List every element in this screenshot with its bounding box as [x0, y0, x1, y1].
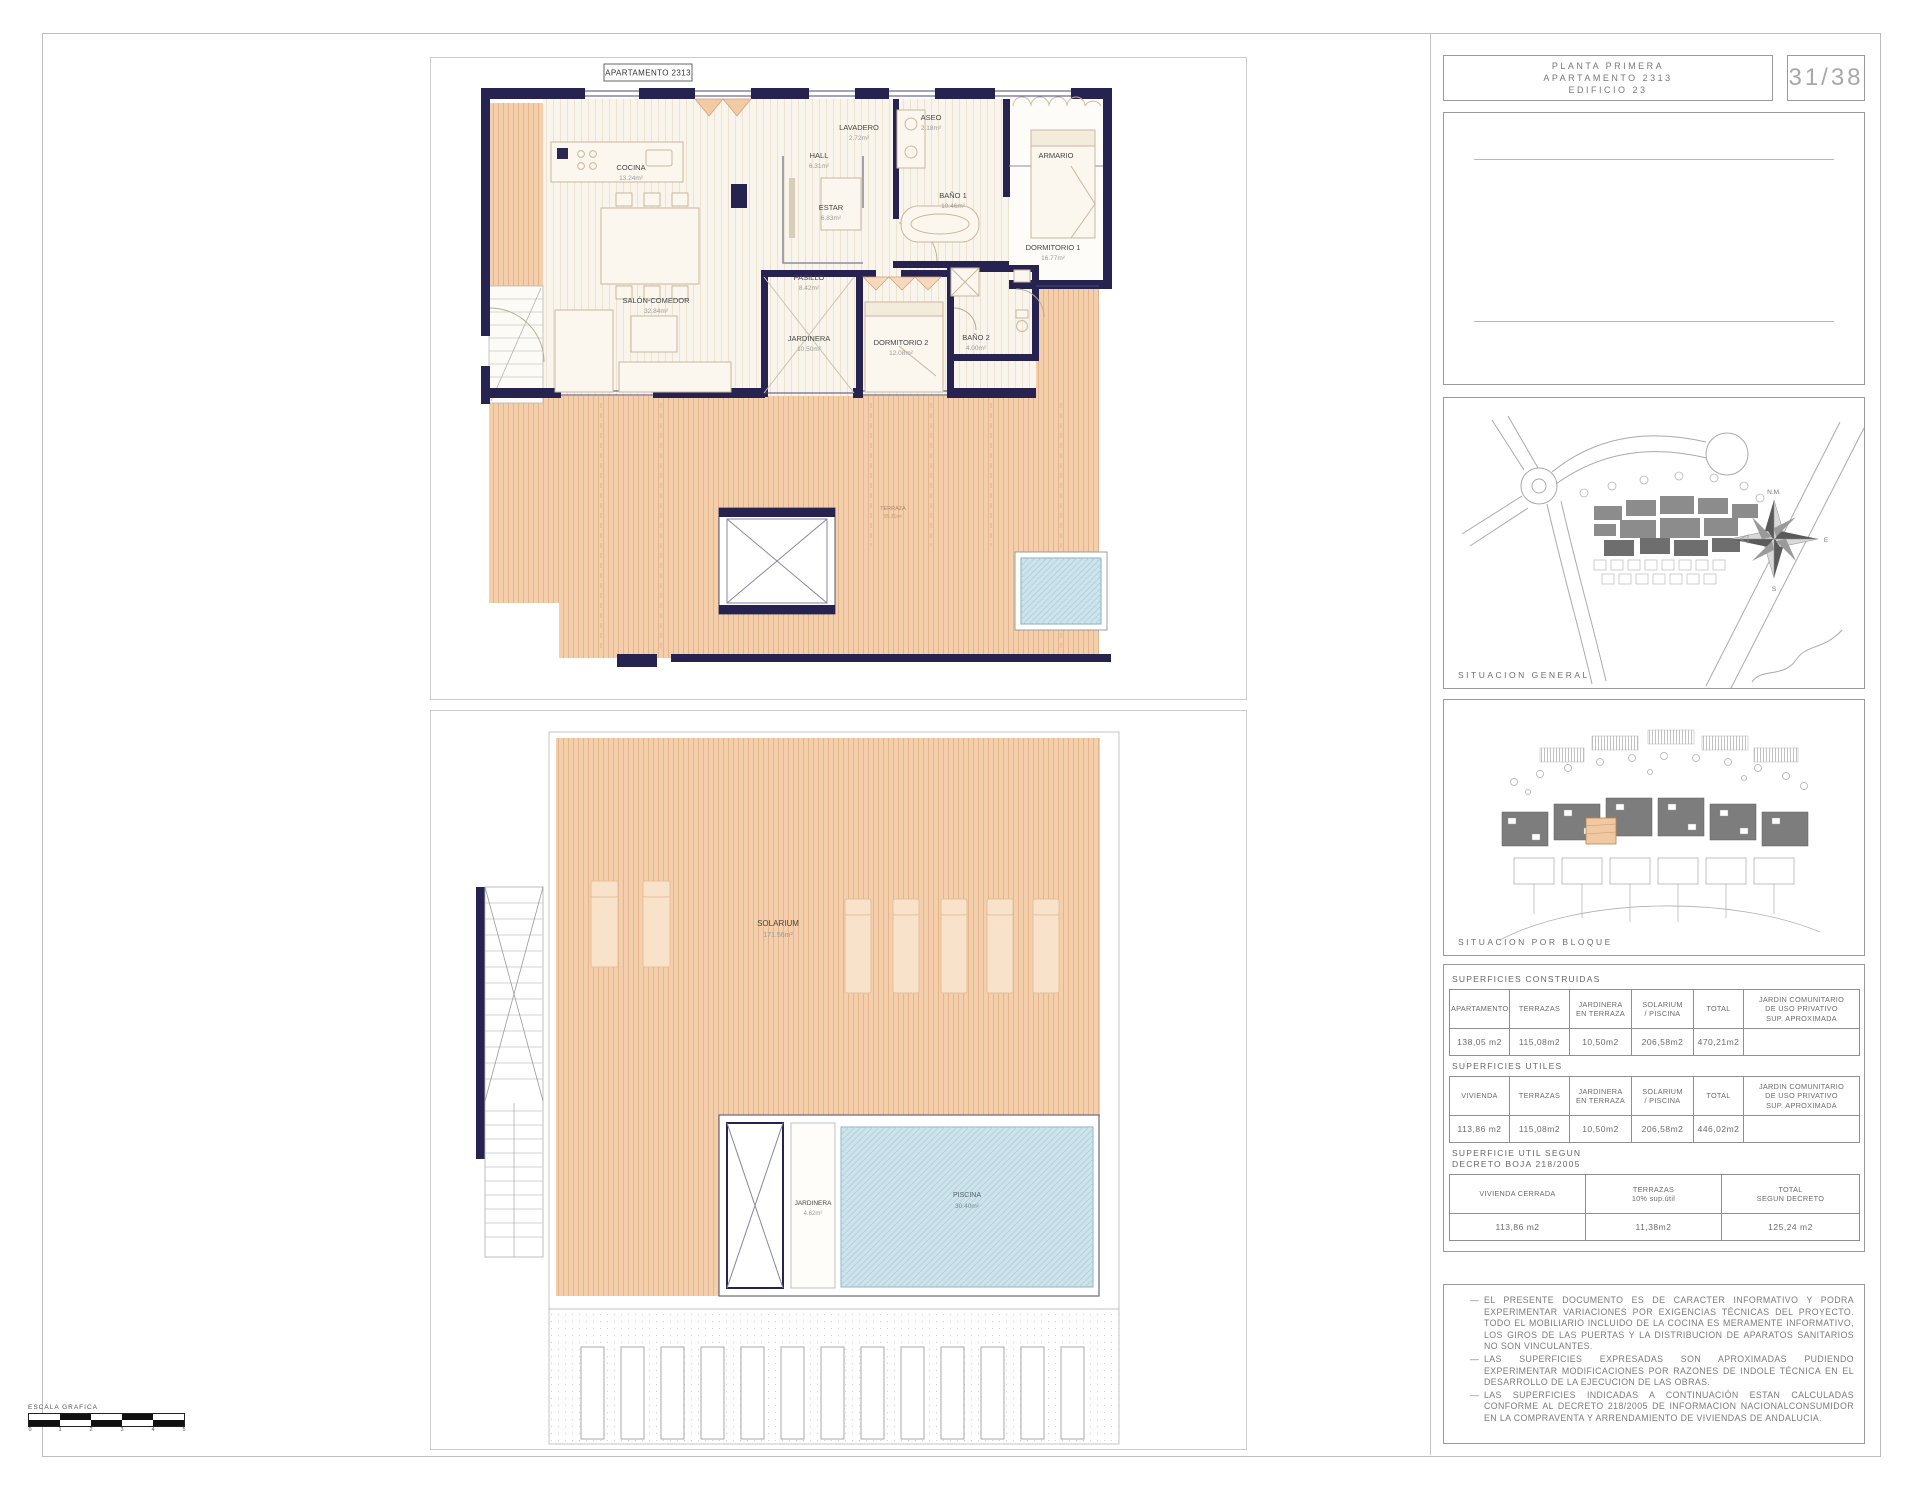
situation-bloque-caption: SITUACION POR BLOQUE: [1458, 937, 1613, 947]
scale-tick: 4: [151, 1427, 154, 1433]
note-item: — LAS SUPERFICIES EXPRESADAS SON APROXIM…: [1470, 1354, 1854, 1389]
cell-value: 206,58m2: [1632, 1029, 1694, 1056]
col-header: JARDIN COMUNITARIO DE USO PRIVATIVO SUP.…: [1744, 1077, 1860, 1116]
col-header: APARTAMENTO: [1450, 990, 1510, 1029]
graphic-scale: ESCALA GRAFICA 0 1 2 3 4 5: [28, 1404, 198, 1435]
scale-tick: 1: [58, 1427, 61, 1433]
sheet-number-box: 31/38: [1787, 55, 1865, 101]
cell-value: 206,58m2: [1632, 1116, 1694, 1143]
signature-box: [1443, 112, 1865, 385]
signature-line: [1474, 321, 1834, 322]
title-line-3: EDIFICIO 23: [1444, 84, 1772, 96]
col-header: TERRAZAS: [1510, 1077, 1570, 1116]
col-header: VIVIENDA CERRADA: [1450, 1175, 1586, 1214]
signature-line: [1474, 159, 1834, 160]
cell-value: 125,24 m2: [1722, 1214, 1860, 1241]
cell-value: 115,08m2: [1510, 1116, 1570, 1143]
cell-value: 11,38m2: [1586, 1214, 1722, 1241]
room-label: ARMARIO: [1038, 151, 1073, 160]
room-area: 2.72m²: [849, 135, 870, 142]
room-area: 16.77m²: [1041, 255, 1066, 262]
table-caption-decreto: SUPERFICIE UTIL SEGUN DECRETO BOJA 218/2…: [1452, 1148, 1856, 1170]
column-divider: [1430, 33, 1431, 1455]
title-line-2: APARTAMENTO 2313: [1444, 72, 1772, 84]
room-area: 6.83m²: [821, 215, 842, 222]
apartment-floor-plan: APARTAMENTO 2313 COCINA 13.24m² HALL 6.3…: [431, 58, 1246, 699]
col-header: TOTAL SEGUN DECRETO: [1722, 1175, 1860, 1214]
room-area: 12.08m²: [889, 350, 914, 357]
room-label: SOLARIUM: [757, 919, 799, 928]
room-label: LAVADERO: [839, 123, 879, 132]
apartment-plan-panel: APARTAMENTO 2313 COCINA 13.24m² HALL 6.3…: [430, 57, 1247, 700]
cell-value: [1744, 1116, 1860, 1143]
table-utiles: VIVIENDA TERRAZAS JARDINERA EN TERRAZA S…: [1449, 1076, 1860, 1143]
cell-value: 113,86 m2: [1450, 1214, 1586, 1241]
cell-value: [1744, 1029, 1860, 1056]
scale-label: ESCALA GRAFICA: [28, 1404, 198, 1411]
hatch-strips: [1540, 730, 1798, 762]
solarium-floor-plan: SOLARIUM 171.56m² JARDINERA 4.62m² PISCI…: [431, 711, 1246, 1449]
room-label: HALL: [810, 151, 829, 160]
room-area: 6.31m²: [809, 163, 830, 170]
building-cluster: [1580, 472, 1764, 584]
room-label: BAÑO 2: [962, 333, 990, 342]
scale-tick: 0: [28, 1427, 31, 1433]
cell-value: 446,02m2: [1694, 1116, 1744, 1143]
cell-value: 115,08m2: [1510, 1029, 1570, 1056]
col-header: SOLARIUM / PISCINA: [1632, 1077, 1694, 1116]
room-area: 10.50m²: [797, 346, 822, 353]
note-text: LAS SUPERFICIES EXPRESADAS SON APROXIMAD…: [1484, 1354, 1854, 1389]
table-decreto: VIVIENDA CERRADA TERRAZAS 10% sup.útil T…: [1449, 1174, 1860, 1241]
pool-row: [719, 1115, 1099, 1296]
col-header: TOTAL: [1694, 990, 1744, 1029]
room-area: 10.46m²: [941, 203, 966, 210]
situation-general-caption: SITUACION GENERAL: [1458, 670, 1590, 680]
room-area: 4.00m²: [966, 345, 987, 352]
drawing-sheet: APARTAMENTO 2313 COCINA 13.24m² HALL 6.3…: [0, 0, 1920, 1491]
compass-east-label: E: [1824, 537, 1829, 544]
title-line-1: PLANTA PRIMERA: [1444, 60, 1772, 72]
room-label: ASEO: [921, 113, 942, 122]
col-header: TOTAL: [1694, 1077, 1744, 1116]
col-header: JARDINERA EN TERRAZA: [1570, 990, 1632, 1029]
sheet-number: 31/38: [1788, 64, 1863, 92]
situation-bloque-map: [1444, 700, 1864, 957]
note-item: — LAS SUPERFICIES INDICADAS A CONTINUACI…: [1470, 1390, 1854, 1425]
room-label: ESTAR: [819, 203, 844, 212]
col-header: JARDIN COMUNITARIO DE USO PRIVATIVO SUP.…: [1744, 990, 1860, 1029]
legal-notes: — EL PRESENTE DOCUMENTO ES DE CARACTER I…: [1443, 1284, 1865, 1444]
plan-tag-label: APARTAMENTO 2313: [605, 69, 691, 78]
stairs: [476, 887, 543, 1257]
scale-tick: 5: [182, 1427, 185, 1433]
table-construidas: APARTAMENTO TERRAZAS JARDINERA EN TERRAZ…: [1449, 989, 1860, 1056]
room-area: 4.62m²: [804, 1211, 823, 1217]
room-area: 30.40m²: [955, 1203, 980, 1210]
stairs: [489, 286, 543, 403]
room-label: COCINA: [616, 163, 645, 172]
cell-value: 470,21m2: [1694, 1029, 1744, 1056]
highlighted-unit: [1586, 818, 1616, 844]
scale-tick: 2: [89, 1427, 92, 1433]
note-bullet: —: [1470, 1390, 1484, 1425]
situation-general-map: N.M. E S: [1444, 398, 1864, 688]
plan-tag: APARTAMENTO 2313: [604, 64, 692, 81]
room-label: PISCINA: [953, 1192, 981, 1199]
col-header: JARDINERA EN TERRAZA: [1570, 1077, 1632, 1116]
table-caption-utiles: SUPERFICIES UTILES: [1452, 1061, 1856, 1072]
room-label: DORMITORIO 1: [1026, 243, 1081, 252]
scale-bar: [28, 1413, 185, 1427]
terrace-pool: [1015, 552, 1107, 630]
cell-value: 10,50m2: [1570, 1116, 1632, 1143]
room-label: JARDINERA: [788, 334, 831, 343]
compass-south-label: S: [1772, 586, 1777, 593]
room-label: DORMITORIO 2: [874, 338, 929, 347]
col-header: VIVIENDA: [1450, 1077, 1510, 1116]
cell-value: 138,05 m2: [1450, 1029, 1510, 1056]
room-area: 13.24m²: [619, 175, 644, 182]
room-area: 8.42m²: [799, 285, 820, 292]
col-header: TERRAZAS 10% sup.útil: [1586, 1175, 1722, 1214]
building-blocks: [1500, 798, 1820, 940]
room-label: TERRAZA: [880, 506, 906, 512]
elevator-shaft: [719, 508, 835, 614]
room-label: SALÓN-COMEDOR: [622, 296, 690, 305]
situation-bloque-box: SITUACION POR BLOQUE: [1443, 699, 1865, 956]
title-block: PLANTA PRIMERA APARTAMENTO 2313 EDIFICIO…: [1443, 55, 1773, 101]
room-label: BAÑO 1: [939, 191, 967, 200]
note-bullet: —: [1470, 1295, 1484, 1353]
elevator-shaft: [727, 1123, 783, 1288]
scale-ticks: 0 1 2 3 4 5: [28, 1427, 185, 1435]
cell-value: 10,50m2: [1570, 1029, 1632, 1056]
note-text: LAS SUPERFICIES INDICADAS A CONTINUACIÓN…: [1484, 1390, 1854, 1425]
note-bullet: —: [1470, 1354, 1484, 1389]
room-label: JARDINERA: [795, 1200, 833, 1207]
scale-tick: 3: [120, 1427, 123, 1433]
situation-general-box: N.M. E S SITUACION GENERAL: [1443, 397, 1865, 689]
col-header: TERRAZAS: [1510, 990, 1570, 1029]
compass-north-label: N.M.: [1767, 489, 1781, 496]
cell-value: 113,86 m2: [1450, 1116, 1510, 1143]
note-item: — EL PRESENTE DOCUMENTO ES DE CARACTER I…: [1470, 1295, 1854, 1353]
table-caption-construidas: SUPERFICIES CONSTRUIDAS: [1452, 974, 1856, 985]
surfaces-tables: SUPERFICIES CONSTRUIDAS APARTAMENTO TERR…: [1443, 964, 1865, 1252]
room-area: 2.18m²: [921, 125, 942, 132]
col-header: SOLARIUM / PISCINA: [1632, 990, 1694, 1029]
room-area: 171.56m²: [763, 932, 793, 939]
room-area: 95.31m²: [884, 514, 903, 520]
pergola-area: [549, 1309, 1119, 1444]
solarium-plan-panel: SOLARIUM 171.56m² JARDINERA 4.62m² PISCI…: [430, 710, 1247, 1450]
note-text: EL PRESENTE DOCUMENTO ES DE CARACTER INF…: [1484, 1295, 1854, 1353]
room-area: 32.84m²: [644, 308, 669, 315]
room-label: PASILLO: [794, 273, 825, 282]
